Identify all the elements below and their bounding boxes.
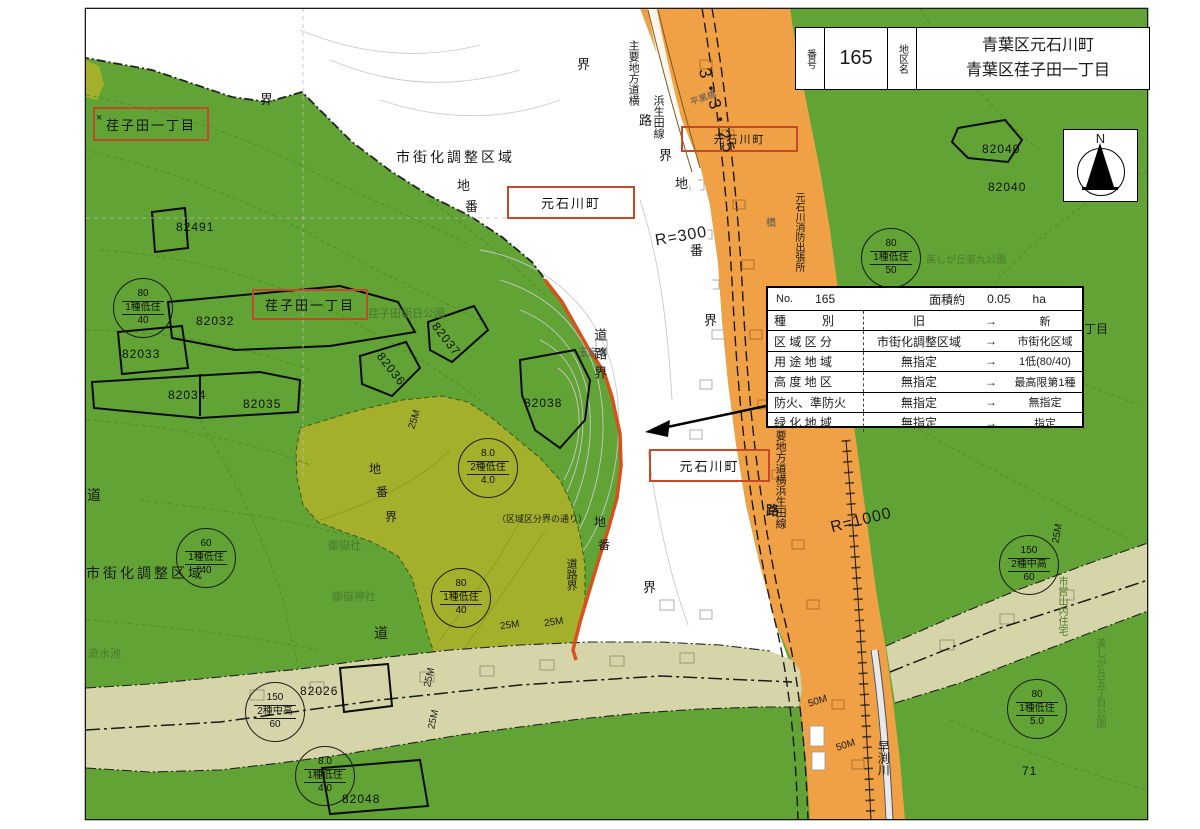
glyph-michi: 道 [374,626,388,641]
zone-bot: 5.0 [1030,716,1044,729]
glyph-kai: 界 [260,93,273,107]
zone-circle-c1: 80 1種低住 40 [113,278,173,338]
zoning-map-page: 番号 165 地区名 青葉区元石川町 青葉区荏子田一丁目 N No. 165 面… [0,0,1200,829]
arrow-glyph: → [974,334,1008,348]
zone-bot: 4.0 [318,783,332,796]
north-arrow-box: N [1063,129,1138,202]
parcel-82048: 82048 [342,792,380,806]
row-old: 無指定 [864,394,974,411]
boxed-label-motoishikawa-center: 元石川町 [507,186,635,219]
glyph-ban: 番 [598,539,610,552]
zone-circle-c5: 150 2種中高 60 [245,682,305,742]
zoning-change-table: No. 165 面積約 0.05 ha 種 別 旧 → 新 区 域 区 分 市街… [766,286,1084,428]
zone-top: 150 [267,692,284,705]
zone-mid: 1種低住 [870,251,912,266]
parcel-82040-a: 82040 [982,142,1020,156]
title-no-label: 番号 [796,28,825,89]
glyph-michi: 道 [87,488,101,503]
zone-mid: 2種中高 [1008,558,1050,573]
zone-top: 60 [200,538,211,551]
map-label-hayabuchi-river: 早渕川 [876,740,889,796]
north-arrow-base [1082,187,1118,190]
north-arrow-icon [1086,143,1114,187]
table-header-row: No. 165 面積約 0.05 ha [768,288,1082,311]
parcel-71: 71 [1022,764,1037,778]
zone-circle-c7: 80 1種低住 50 [861,228,921,288]
glyph-ban: 番 [465,200,478,214]
table-no-value: 165 [815,292,835,306]
glyph-chi: 地 [594,516,606,529]
parcel-82034: 82034 [168,388,206,402]
row-item: 区 域 区 分 [768,331,864,350]
row-new: 最高限第1種 [1008,374,1082,390]
zone-mid: 1種低住 [440,591,482,606]
glyph-x-mark: × [96,112,102,124]
row-new: 市街化区域 [1008,333,1082,349]
table-row: 防火、準防火 無指定 → 無指定 [768,393,1082,413]
parcel-82491: 82491 [176,220,214,234]
zone-mid: 1種低住 [185,551,227,566]
table-row: 用 途 地 域 無指定 → 1低(80/40) [768,352,1082,372]
map-label-chome-partial: 丁目 [1084,323,1108,336]
glyph-kai: 界 [385,511,397,524]
map-label-municipal-housing: 市営山内住宅 [1056,576,1067,666]
map-label-road-name-right: 要地方道横浜生田線 [774,430,786,552]
zone-bot: 40 [455,605,466,618]
glyph-chi: 地 [457,179,470,193]
map-label-road-name-left-1: 主要地方道横 [627,40,639,120]
glyph-ban: 番 [690,244,703,258]
boxed-label-ekoda-2: 荏子田一丁目 [252,289,368,320]
glyph-chi: 地 [369,463,381,476]
row-item: 用 途 地 域 [768,352,864,371]
row-old: 無指定 [864,373,974,390]
zone-bot: 50 [885,265,896,278]
glyph-ro: 路 [766,504,779,518]
zone-circle-c3: 80 1種低住 40 [431,568,491,628]
zone-top: 80 [455,578,466,591]
glyph-road-boundary: 道路界 [565,558,577,606]
title-district-label: 地区名 [888,28,917,89]
zone-mid: 2種中高 [254,705,296,720]
zone-top: 80 [137,288,148,301]
parcel-82038: 82038 [524,396,562,410]
zone-top: 80 [885,238,896,251]
district-line2: 青葉区荏子田一丁目 [966,59,1110,84]
glyph-ban: 番 [376,486,388,499]
table-row: 区 域 区 分 市街化調整区域 → 市街化区域 [768,331,1082,351]
map-label-ekoda-asahi-park: 荏子田朝日公園 [368,308,445,320]
row-new: 無指定 [1008,394,1082,410]
zone-circle-c9: 80 1種低住 5.0 [1007,679,1067,739]
table-area-unit: ha [1033,292,1046,306]
zone-bot: 60 [1023,572,1034,585]
zone-top: 80 [1031,689,1042,702]
parcel-82032: 82032 [196,314,234,328]
glyph-kai: 界 [659,149,672,163]
zone-top: 8.0 [318,756,332,769]
zone-top: 8.0 [481,448,495,461]
row-item: 防火、準防火 [768,393,864,412]
boxed-label-ekoda-1: 荏子田一丁目 [93,107,209,141]
map-label-bridge-glyph: 橋 [766,218,776,229]
map-label-retention-pond: 遊水池 [88,648,121,660]
parcel-82033: 82033 [122,347,160,361]
zone-mid: 1種低住 [122,301,164,316]
zone-bot: 4.0 [481,475,495,488]
arrow-glyph: → [974,314,1008,328]
table-row: 種 別 旧 → 新 [768,311,1082,331]
arrow-glyph: → [974,354,1008,368]
arrow-glyph: → [974,416,1008,430]
title-block: 番号 165 地区名 青葉区元石川町 青葉区荏子田一丁目 [795,27,1150,90]
boxed-label-motoishikawa-bottom: 元石川町 [649,449,770,482]
glyph-ro: 路 [639,114,652,128]
parcel-82026: 82026 [300,684,338,698]
arrow-glyph: → [974,395,1008,409]
map-label-utsukushigaoka-9-park: 美しが丘第九公園 [926,255,1006,266]
arrow-glyph: → [974,375,1008,389]
zone-circle-c8: 150 2種中高 60 [999,535,1059,595]
map-label-boundary-note: （区域区分界の通り） [497,515,587,525]
map-label-urbanization-control-bottom: 市街化調整区域 [86,566,205,581]
zone-bot: 40 [137,315,148,328]
parcel-82040-b: 82040 [988,180,1026,194]
table-row: 緑 化 地 域 無指定 → 指定 [768,413,1082,432]
zone-mid: 1種低住 [304,769,346,784]
row-new: 1低(80/40) [1008,353,1082,369]
map-label-road-name-left-2: 浜生田線 [652,95,664,153]
title-no-value: 165 [825,28,888,89]
parcel-82035: 82035 [243,397,281,411]
row-new: 新 [1008,313,1082,329]
row-old: 旧 [864,312,974,329]
glyph-road-boundary: 道路界 [592,328,606,402]
zone-mid: 1種低住 [1016,702,1058,717]
map-label-ontakesha-shrine: 御嶽社 [328,540,361,552]
glyph-kai: 界 [704,314,717,328]
row-new: 指定 [1008,415,1082,431]
zone-circle-c4: 8.0 2種低住 4.0 [458,438,518,498]
zone-bot: 60 [269,719,280,732]
zone-top: 150 [1021,545,1038,558]
table-row: 高 度 地 区 無指定 → 最高限第1種 [768,372,1082,392]
glyph-chi: 地 [675,177,688,191]
district-line1: 青葉区元石川町 [982,34,1094,59]
map-label-fire-station: 元石川消防出張所 [793,192,804,288]
table-no-label: No. [776,293,793,305]
row-item: 種 別 [768,311,864,330]
row-old: 市街化調整区域 [864,333,974,350]
title-district-names: 青葉区元石川町 青葉区荏子田一丁目 [917,28,1149,89]
glyph-kai: 界 [643,581,656,595]
glyph-kai: 界 [577,58,590,72]
map-label-urbanization-control-top: 市街化調整区域 [396,150,515,165]
map-label-utsukushigaoka-5-park: 美しが丘五丁目公園 [1094,638,1105,758]
row-old: 無指定 [864,353,974,370]
table-area-label: 面積約 [929,291,965,308]
row-item: 高 度 地 区 [768,372,864,391]
map-label-ontake-jinja-shrine: 御嶽神社 [332,591,376,603]
boxed-label-motoishikawa-top: 元石川町 [681,126,798,152]
table-area-value: 0.05 [987,292,1010,306]
zone-mid: 2種低住 [467,461,509,476]
row-old: 無指定 [864,414,974,431]
